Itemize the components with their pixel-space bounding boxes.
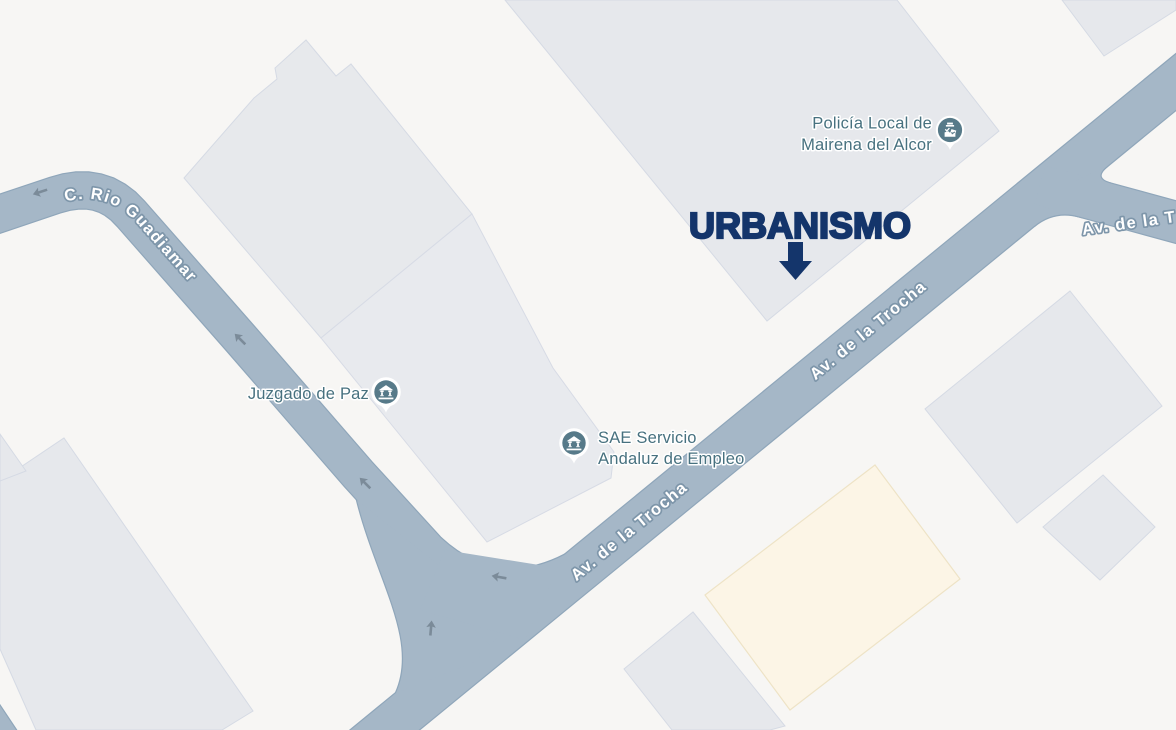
svg-text:URBANISMO: URBANISMO: [689, 205, 911, 246]
svg-text:Mairena del Alcor: Mairena del Alcor: [801, 136, 932, 154]
svg-text:SAE Servicio: SAE Servicio: [598, 429, 697, 447]
svg-text:Juzgado de Paz: Juzgado de Paz: [248, 385, 369, 403]
svg-text:Andaluz de Empleo: Andaluz de Empleo: [598, 450, 745, 468]
svg-text:Policía Local de: Policía Local de: [812, 115, 932, 133]
